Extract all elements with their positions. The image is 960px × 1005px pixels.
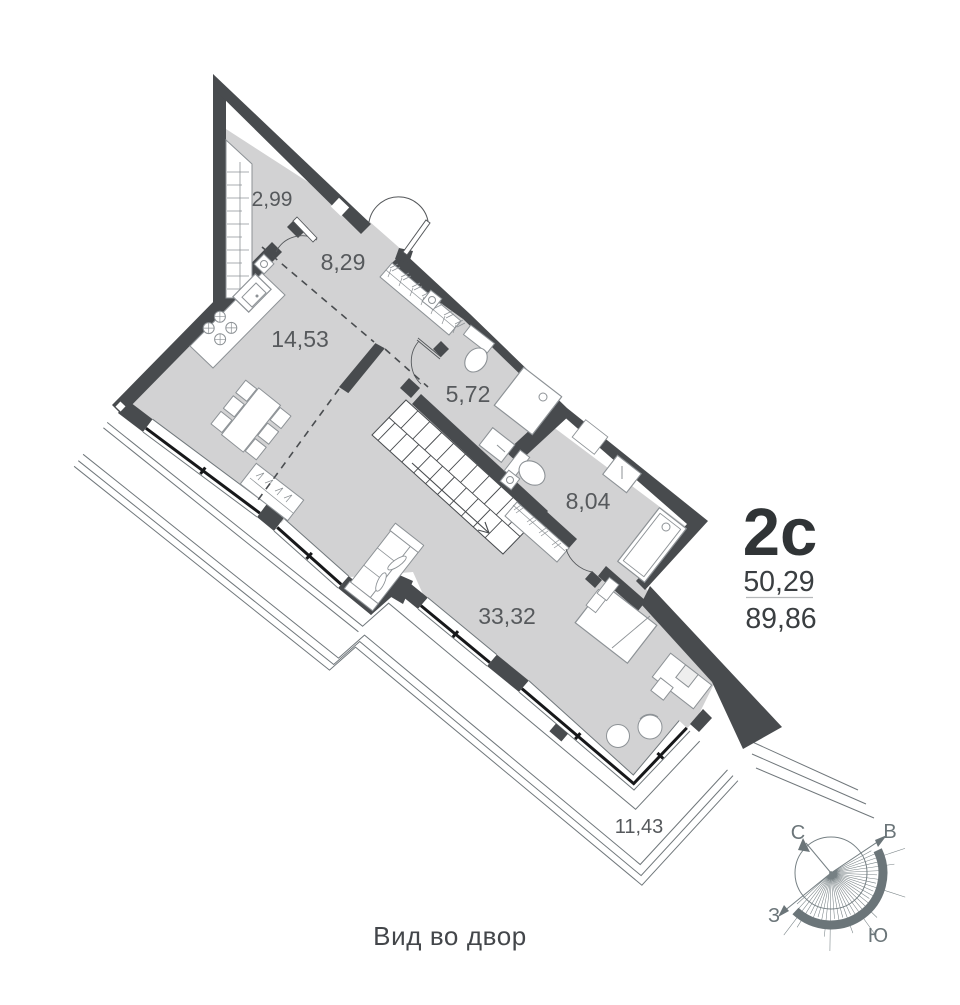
svg-text:5,72: 5,72 xyxy=(446,381,491,407)
svg-text:50,29: 50,29 xyxy=(743,566,814,598)
svg-text:11,43: 11,43 xyxy=(615,816,664,838)
svg-text:Вид во двор: Вид во двор xyxy=(373,921,527,951)
svg-text:З: З xyxy=(768,905,780,927)
svg-text:89,86: 89,86 xyxy=(745,603,816,635)
svg-text:8,04: 8,04 xyxy=(566,488,611,514)
svg-text:8,29: 8,29 xyxy=(321,249,366,275)
svg-text:2,99: 2,99 xyxy=(252,188,293,211)
svg-text:С: С xyxy=(791,822,805,844)
svg-text:14,53: 14,53 xyxy=(271,326,329,352)
svg-text:2с: 2с xyxy=(743,495,818,570)
svg-text:Ю: Ю xyxy=(868,925,888,947)
svg-text:В: В xyxy=(883,821,896,843)
svg-text:33,32: 33,32 xyxy=(478,603,536,629)
